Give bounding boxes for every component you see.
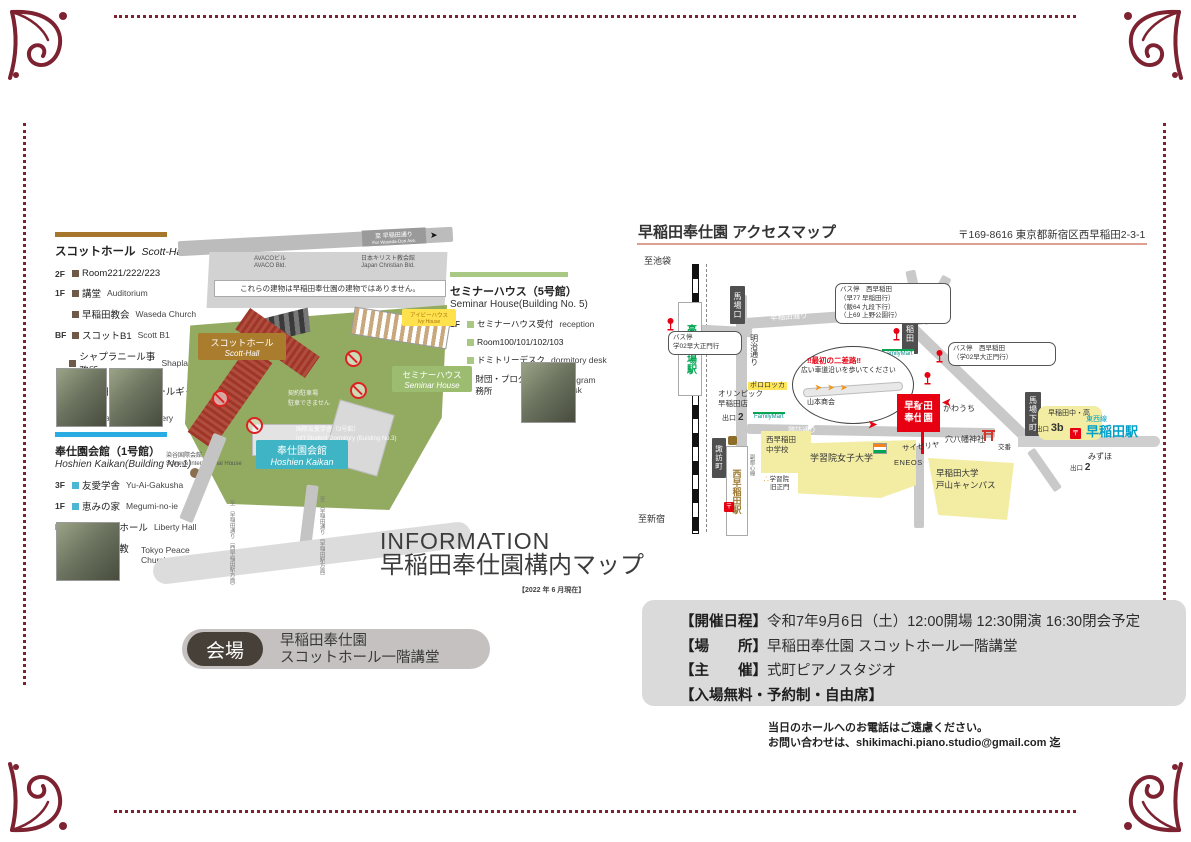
no-parking-icon (345, 350, 362, 367)
venue-badge: 会場 (187, 632, 263, 666)
map-as-of-date: 【2022 年 6 月現在】 (518, 587, 585, 595)
legend-swatch (72, 332, 79, 339)
photo-scott-hall-gallery (109, 368, 163, 427)
event-info-box: 【開催日程】令和7年9月6日（土）12:00開場 12:30開演 16:30閉会… (642, 600, 1186, 706)
bus-stop-icon (892, 328, 901, 341)
anahachiman-shrine-label: 穴八幡神社 (945, 435, 985, 445)
non-hoshien-note: これらの建物は早稲田奉仕園の建物ではありません。 (214, 280, 446, 297)
post-office-icon: 〒 (1070, 428, 1081, 439)
no-parking-icon (246, 417, 263, 434)
arrow-icon: ➤ (430, 230, 438, 241)
corner-ornament-top-right (1121, 6, 1185, 82)
bus-stop-nishiwaseda-west: バス停 西早稲田 （早77 早稲田行） （飯64 九段下行） （上69 上野公園… (835, 283, 951, 324)
contact-email-line: お問い合わせは、shikimachi.piano.studio@gmail.co… (768, 736, 1060, 751)
route-note-bubble: ‼最初の二差路‼ 広い車道沿いを歩いてください ➤➤➤ 山本商会 (792, 346, 914, 424)
bus-stop-icon (935, 350, 944, 363)
waseda-junior-senior-high-label: 早稲田中・高 (1048, 410, 1090, 418)
yamamoto-shokai-label: 山本商会 (807, 399, 835, 407)
gakushuin-womens-college-area (798, 440, 916, 498)
sign-southeast-exit: 至 早稲田通り（早稲田駅方面） (318, 496, 325, 556)
legend-swatch (467, 357, 474, 364)
fukutoshin-line-label: 副都心線 (748, 454, 755, 494)
bus-stop-icon (666, 318, 675, 331)
corner-ornament-bottom-left (6, 760, 70, 836)
exit-3b-label: 出口 3b (1036, 422, 1064, 435)
avaco-building-label: AVACOビルAVACO Bld. (240, 256, 300, 270)
familymart-label: FamilyMart (753, 412, 785, 421)
torii-icon (982, 428, 995, 446)
legend-title-ja: セミナーハウス（5号館） (450, 283, 610, 299)
dotted-border-top (114, 15, 1076, 18)
parking-note: 契約駐車場駐車できません (288, 390, 330, 409)
contact-note: 当日のホールへのお電話はご遠慮ください。 お問い合わせは、shikimachi.… (768, 721, 1060, 751)
dotted-border-bottom (114, 810, 1076, 813)
legend-swatch (467, 321, 474, 328)
route-arrow-icon: ➤ (915, 396, 928, 405)
babaguchi-intersection: 馬場口 (730, 286, 745, 324)
mizuho-bank-label: みずほ (1088, 452, 1112, 462)
header-underline (637, 243, 1147, 245)
access-map: 至池袋 至新宿 高田馬場駅 馬場口 明治通り 西早稲田 諏訪町 馬場下町 早稲田… (630, 250, 1165, 572)
nishiwaseda-station: 西早稲田駅 (726, 446, 748, 536)
seven-eleven-icon (873, 443, 887, 454)
event-date-line: 【開催日程】令和7年9月6日（土）12:00開場 12:30開演 16:30閉会… (680, 610, 1140, 635)
bus-stop-icon (923, 372, 932, 385)
gakushuin-womens-college-label: 学習院女子大学 (810, 453, 873, 464)
eneos-label: ENEOS (894, 458, 923, 467)
label-hoshien-kaikan: 奉仕園会館 Hoshien Kaikan (256, 440, 348, 469)
legend-swatch (467, 339, 474, 346)
legend-item: 2FRoom221/222/223 (55, 268, 205, 279)
legend-item: 1F講堂Auditorium (55, 286, 205, 300)
legend-item: 1Fセミナーハウス受付reception (450, 318, 610, 330)
legend-swatch (72, 290, 79, 297)
no-parking-icon (212, 390, 229, 407)
suwacho-intersection: 諏訪町 (712, 438, 726, 478)
koban-label: 交番 (998, 444, 1011, 452)
flyer-page: { "page": { "accent": "#7d2231" }, "camp… (0, 0, 1191, 842)
exit-2-left-label: 出口 2 (722, 412, 744, 424)
waseda-station-label: 早稲田駅 (1086, 424, 1138, 440)
dotted-border-left (23, 123, 26, 685)
olympic-store-label: オリンピック早稲田店 (718, 389, 763, 409)
legend-swatch (72, 270, 79, 277)
sign-southwest-exit: 至 早稲田通り（西早稲田駅方面） (228, 500, 235, 560)
sign-to-waseda-dori: 至 早稲田通り For Waseda-Dori Ave. (362, 227, 427, 246)
legend-swatch (72, 503, 79, 510)
fukutoshin-line-icon (728, 436, 737, 445)
no-parking-icon (350, 382, 367, 399)
bus-stop-gaku02-takadanobaba: バス停 学02早大正門行 (668, 331, 742, 355)
photo-liberty-hall-entrance (56, 522, 120, 581)
label-ivy-house: アイビーハウス Ivy House (402, 309, 456, 326)
legend-color-bar (450, 272, 568, 277)
event-organizer-line: 【主 催】式町ピアノスタジオ (680, 659, 1140, 684)
venue-address: 〒169-8616 東京都新宿区西早稲田2-3-1 (958, 229, 1145, 242)
event-admission-line: 【入場無料・予約制・自由席】 (680, 684, 1140, 709)
legend-swatch (72, 311, 79, 318)
route-arrows-icon: ➤➤➤ (815, 383, 853, 393)
photo-seminar-house (521, 362, 576, 423)
corner-ornament-top-left (6, 6, 70, 82)
legend-item: 早稲田教会Waseda Church (55, 307, 205, 321)
event-place-line: 【場 所】早稲田奉仕園 スコットホール一階講堂 (680, 635, 1140, 660)
route-arrow-icon: ➤ (868, 418, 877, 431)
waseda-toyama-campus-label: 早稲田大学戸山キャンパス (936, 468, 996, 492)
route-arrow-icon: ➤ (942, 396, 951, 409)
legend-color-bar (55, 432, 167, 437)
legend-swatch (69, 360, 76, 367)
japan-christian-building-label: 日本キリスト教会館Japan Christian Bld. (352, 256, 424, 270)
access-map-title: 早稲田奉仕園 アクセスマップ (638, 224, 836, 242)
legend-item: Room100/101/102/103 (450, 337, 610, 347)
label-scott-hall: スコットホール Scott-Hall (198, 333, 286, 360)
bus-stop-nishiwaseda-east: バス停 西早稲田 （学02早大正門行） (948, 342, 1056, 366)
exit-2-right-label: 出口 2 (1070, 462, 1090, 474)
label-seminar-house: セミナーハウス Seminar House (392, 366, 472, 392)
post-office-icon: 〒 (724, 502, 734, 512)
dormitory-label: 国際友愛学舎（3号館）Int'l Student Dormitory (Buil… (296, 426, 397, 444)
gakushuin-old-gate-label: ∴学習院旧正門 (763, 476, 790, 493)
legend-title-en: Seminar House(Building No. 5) (450, 299, 610, 310)
legend-swatch (72, 482, 79, 489)
to-ikebukuro-label: 至池袋 (644, 256, 671, 267)
legend-color-bar (55, 232, 167, 237)
venue-name: 早稲田奉仕園 スコットホール一階講堂 (280, 633, 440, 666)
corner-ornament-bottom-right (1121, 760, 1185, 836)
legend-item: BFスコットB1Scott B1 (55, 328, 205, 342)
campus-map-title: 早稲田奉仕園構内マップ (380, 552, 644, 581)
nishiwaseda-junior-high-label: 西早稲田中学校 (766, 435, 796, 455)
venue-box: 会場 早稲田奉仕園 スコットホール一階講堂 (182, 629, 490, 669)
photo-scott-hall-entrance (56, 368, 107, 427)
road-exit2-diagonal (1027, 448, 1062, 492)
to-shinjuku-label: 至新宿 (638, 514, 665, 525)
legend-title-ja: スコットホール (55, 246, 136, 258)
railway-track-line (706, 264, 707, 532)
